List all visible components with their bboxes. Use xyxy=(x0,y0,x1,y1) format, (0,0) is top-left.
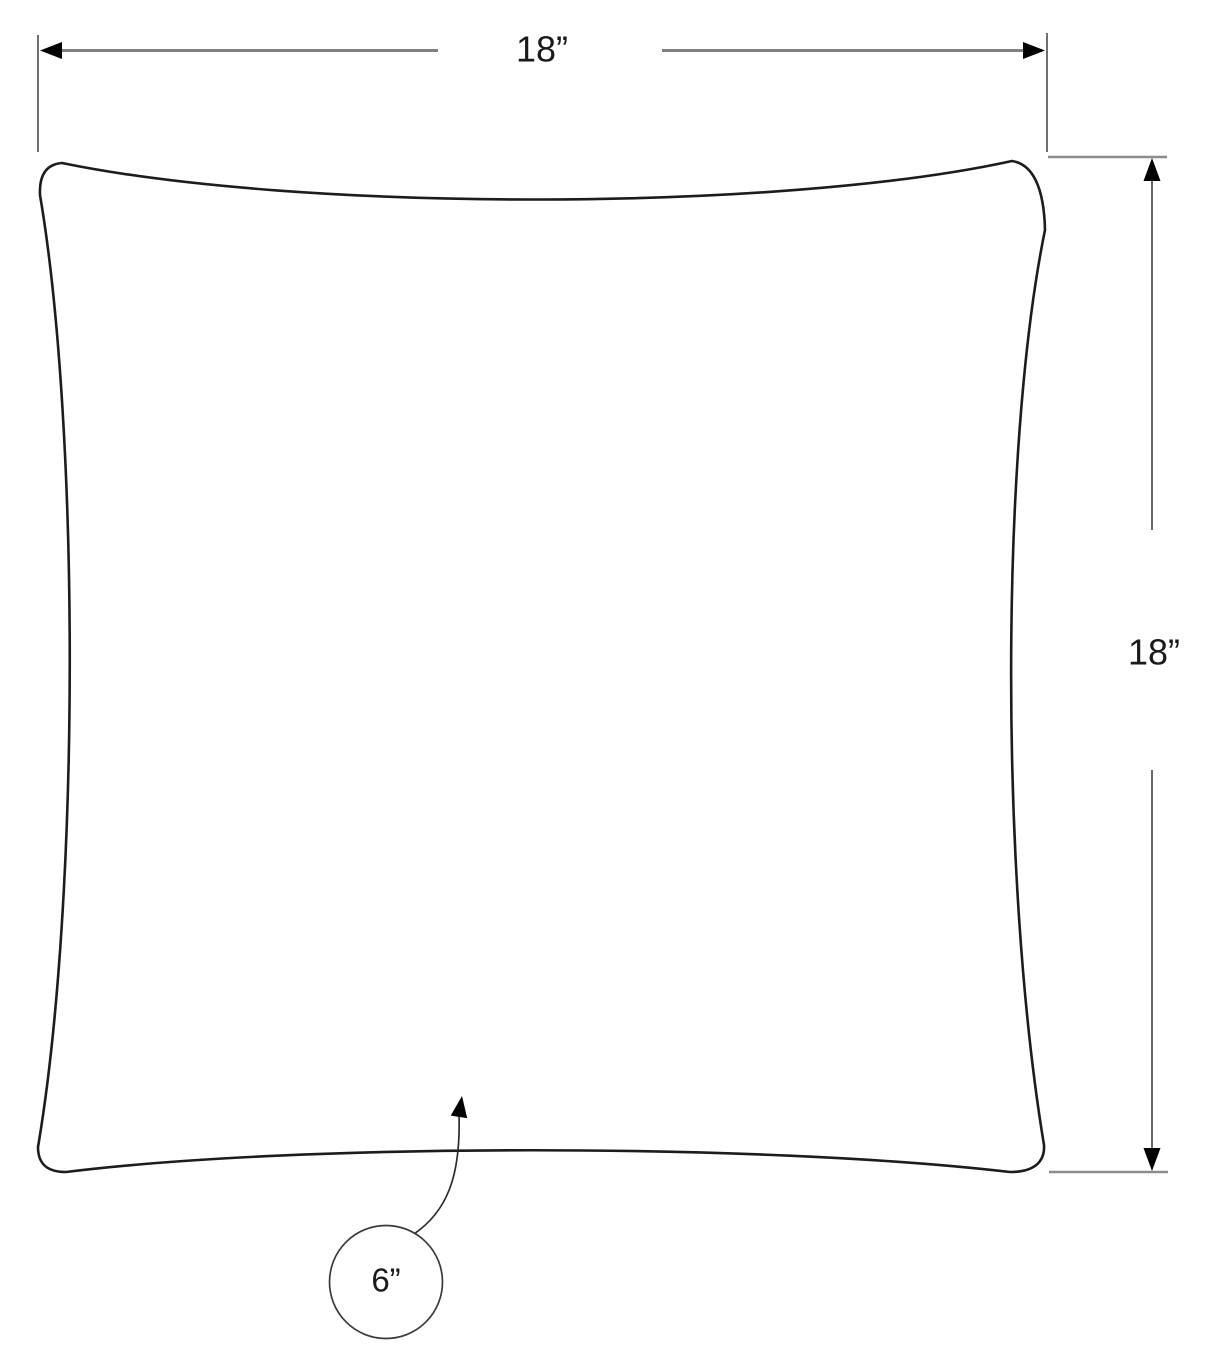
detail-callout: 6” xyxy=(330,1096,468,1339)
top-width-dimension: 18” xyxy=(38,29,1047,153)
leader-line xyxy=(414,1114,459,1234)
arrowhead-down-icon xyxy=(1144,1148,1161,1171)
pillow-outline xyxy=(38,161,1045,1172)
detail-dimension-label: 6” xyxy=(371,1262,400,1299)
height-dimension-label: 18” xyxy=(1128,632,1180,673)
leader-arrowhead-icon xyxy=(451,1096,468,1118)
arrowhead-up-icon xyxy=(1144,158,1161,181)
width-dimension-label: 18” xyxy=(516,29,568,70)
arrowhead-left-icon xyxy=(40,42,62,59)
pillow-dimension-diagram: 18” 18” 6” xyxy=(0,0,1209,1372)
drawing-canvas: 18” 18” 6” xyxy=(0,0,1209,1372)
arrowhead-right-icon xyxy=(1023,42,1045,59)
right-height-dimension: 18” xyxy=(1048,157,1180,1172)
